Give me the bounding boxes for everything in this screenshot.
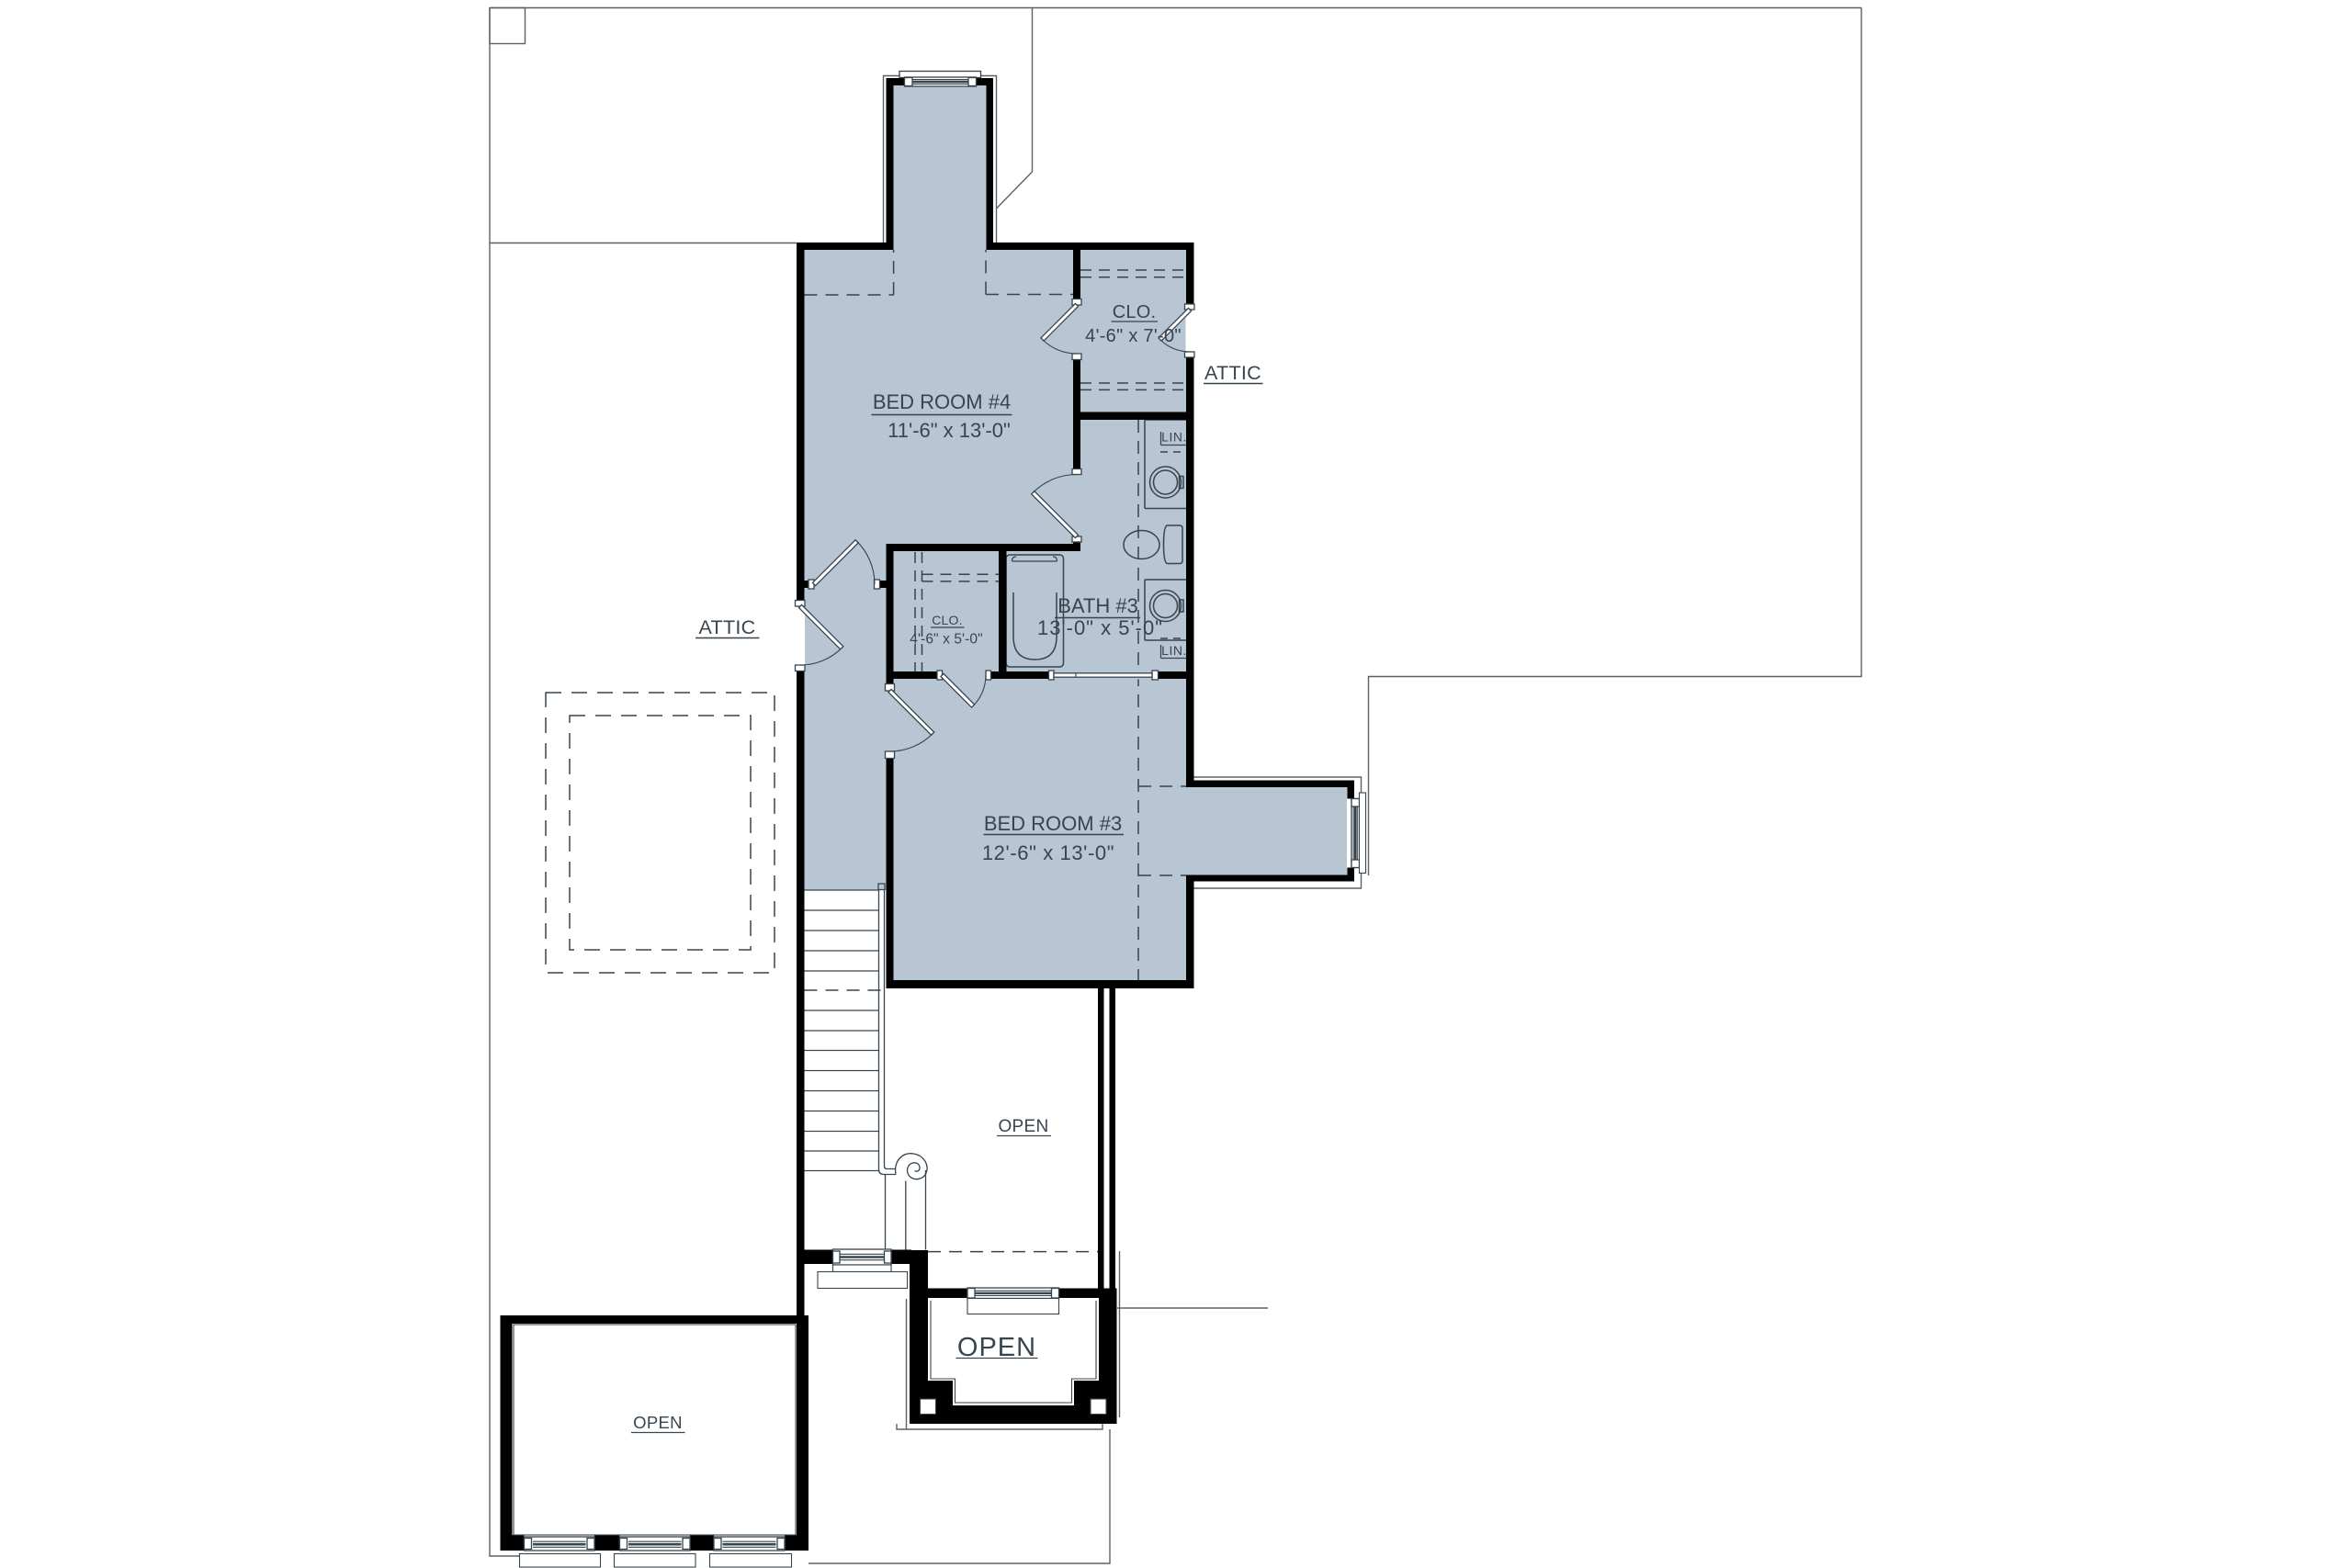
svg-text:ATTIC: ATTIC (1204, 362, 1261, 384)
svg-text:11'-6" x 13'-0": 11'-6" x 13'-0" (888, 419, 1011, 442)
svg-text:LIN.: LIN. (1161, 643, 1187, 658)
svg-text:4'-6" x 5'-0": 4'-6" x 5'-0" (910, 632, 982, 648)
svg-text:OPEN: OPEN (633, 1413, 683, 1432)
svg-text:BED ROOM #3: BED ROOM #3 (984, 812, 1122, 835)
svg-text:13'-0" x 5'-0": 13'-0" x 5'-0" (1037, 616, 1163, 639)
svg-text:BED ROOM #4: BED ROOM #4 (873, 390, 1011, 413)
svg-text:LIN.: LIN. (1161, 430, 1187, 445)
svg-text:ATTIC: ATTIC (698, 616, 755, 638)
svg-text:12'-6" x 13'-0": 12'-6" x 13'-0" (982, 841, 1114, 864)
svg-text:4'-6" x 7'-0": 4'-6" x 7'-0" (1085, 326, 1182, 346)
svg-text:CLO.: CLO. (932, 613, 962, 627)
svg-text:OPEN: OPEN (998, 1117, 1048, 1136)
svg-text:CLO.: CLO. (1113, 302, 1156, 322)
svg-text:BATH #3: BATH #3 (1057, 594, 1138, 617)
